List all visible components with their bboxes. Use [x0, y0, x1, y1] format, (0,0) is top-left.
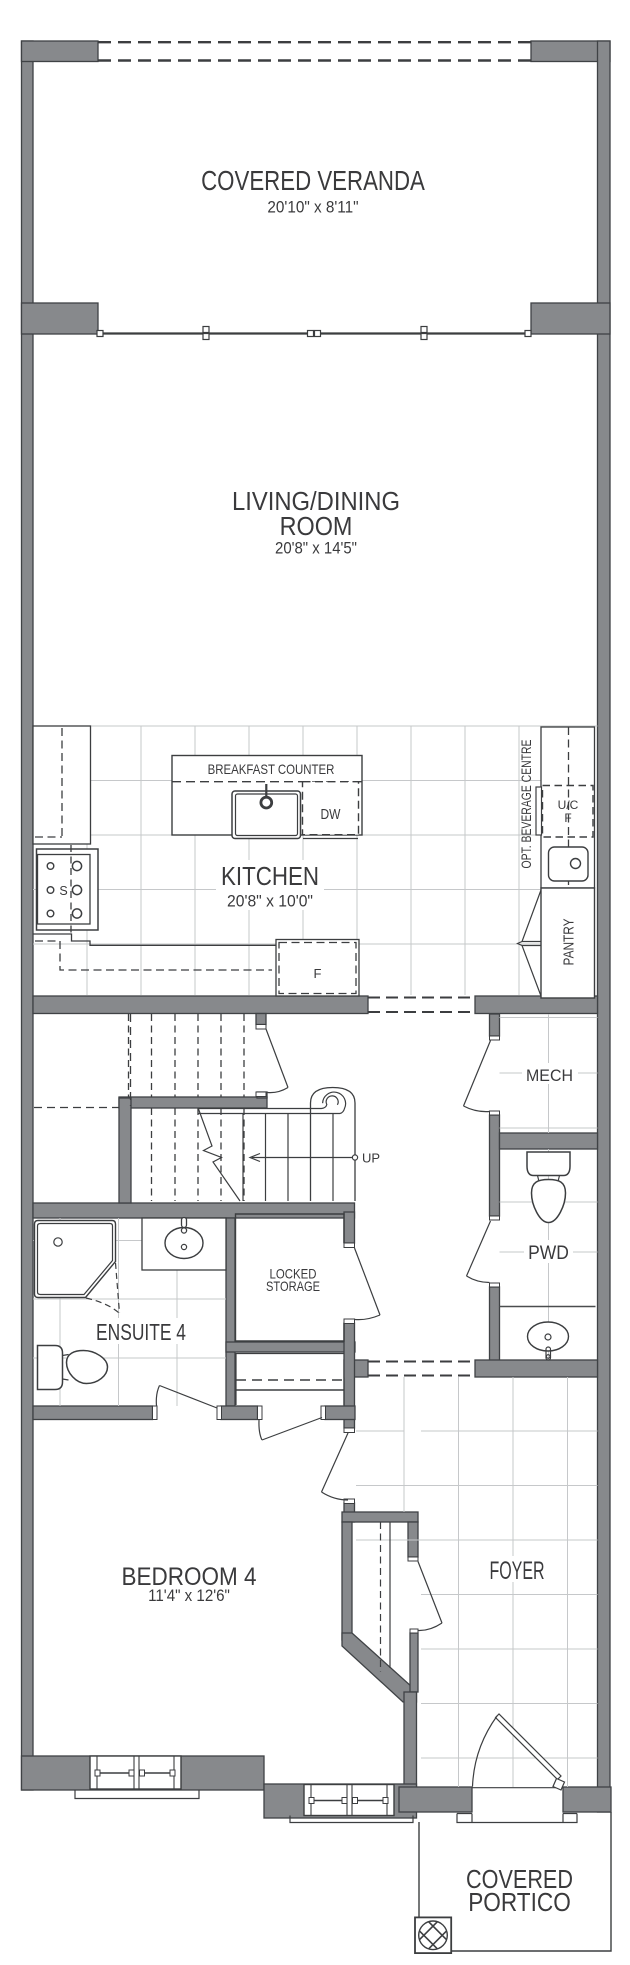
- svg-text:PWD: PWD: [528, 1241, 569, 1263]
- svg-text:S: S: [59, 884, 67, 898]
- svg-text:20'8" x 10'0": 20'8" x 10'0": [227, 892, 313, 911]
- svg-text:20'8" x 14'5": 20'8" x 14'5": [275, 540, 357, 558]
- svg-text:11'4" x 12'6": 11'4" x 12'6": [148, 1586, 230, 1605]
- svg-text:F: F: [564, 811, 571, 825]
- svg-text:BREAKFAST COUNTER: BREAKFAST COUNTER: [208, 761, 335, 777]
- svg-text:ENSUITE 4: ENSUITE 4: [96, 1321, 186, 1346]
- svg-text:ROOM: ROOM: [280, 513, 353, 541]
- svg-text:MECH: MECH: [526, 1067, 573, 1086]
- svg-text:UP: UP: [362, 1151, 380, 1166]
- svg-text:LIVING/DINING: LIVING/DINING: [232, 487, 400, 516]
- svg-text:FOYER: FOYER: [489, 1558, 544, 1585]
- svg-text:PANTRY: PANTRY: [560, 919, 577, 966]
- svg-text:F: F: [314, 966, 322, 981]
- svg-text:PORTICO: PORTICO: [468, 1889, 571, 1918]
- svg-text:STORAGE: STORAGE: [266, 1279, 320, 1295]
- svg-text:OPT. BEVERAGE CENTRE: OPT. BEVERAGE CENTRE: [519, 740, 535, 869]
- svg-text:U/C: U/C: [558, 798, 579, 812]
- svg-text:DW: DW: [321, 806, 341, 823]
- svg-text:COVERED VERANDA: COVERED VERANDA: [201, 166, 425, 197]
- svg-text:20'10" x 8'11": 20'10" x 8'11": [267, 198, 358, 217]
- svg-text:KITCHEN: KITCHEN: [221, 862, 319, 891]
